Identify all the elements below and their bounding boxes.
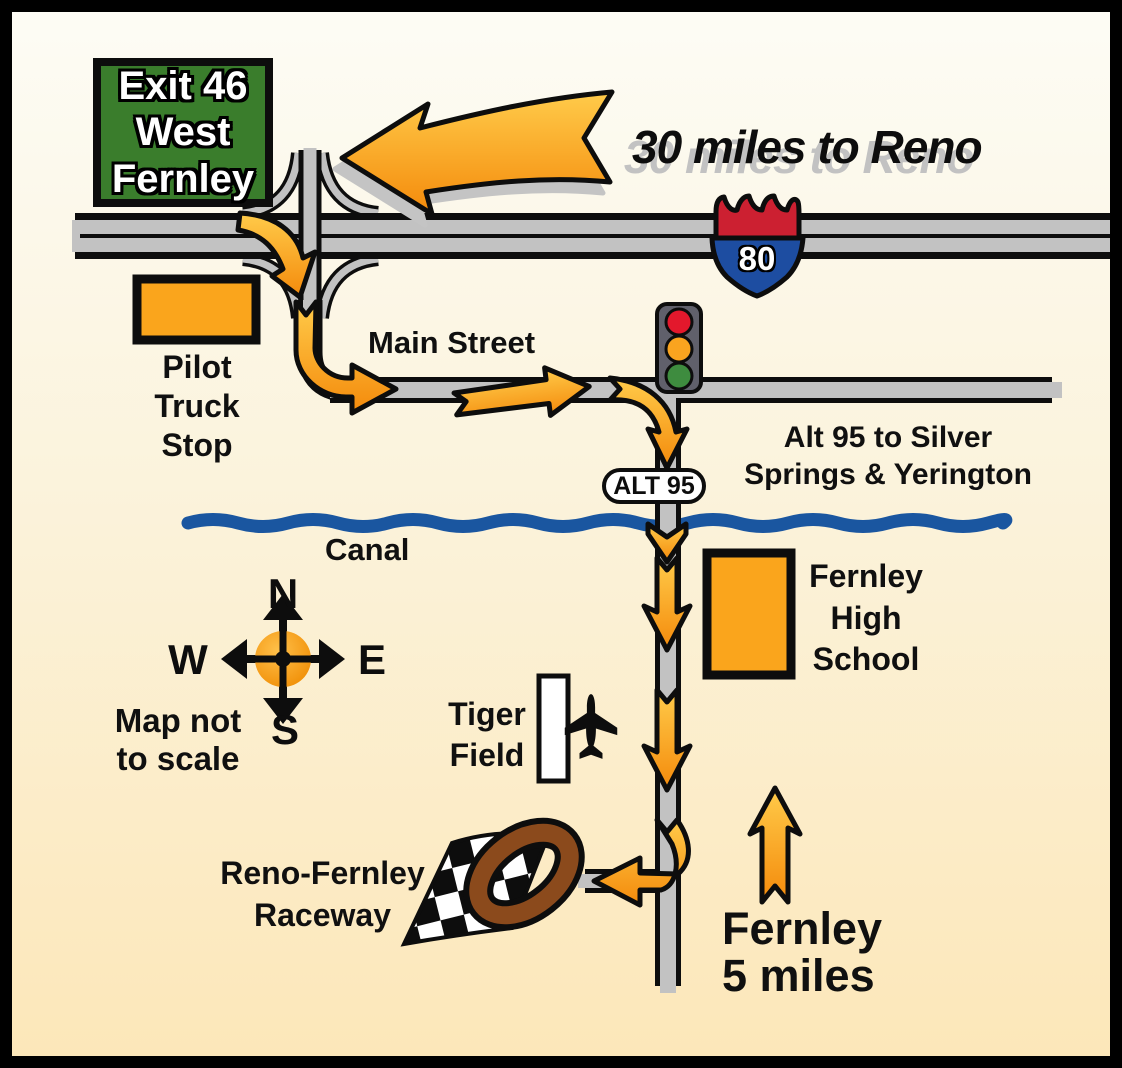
- tiger-field-label: Tiger Field: [432, 694, 542, 776]
- compass-north-label: N: [261, 570, 305, 618]
- alt95-destination-label: Alt 95 to Silver Springs & Yerington: [738, 420, 1038, 493]
- interstate-80-number: 80: [731, 240, 783, 278]
- pilot-truck-stop-label: Pilot Truck Stop: [142, 348, 252, 465]
- map-frame: Exit 46 West Fernley 30 miles to Reno 80…: [0, 0, 1122, 1068]
- compass-west-label: W: [166, 636, 210, 684]
- map-canvas: Exit 46 West Fernley 30 miles to Reno 80…: [12, 12, 1110, 1056]
- label-layer: Exit 46 West Fernley 30 miles to Reno 80…: [12, 12, 1110, 1056]
- canal-label: Canal: [325, 530, 409, 569]
- exit-46-sign-text: Exit 46 West Fernley: [112, 63, 254, 202]
- compass-east-label: E: [350, 636, 394, 684]
- map-scale-note: Map not to scale: [98, 702, 258, 778]
- alt95-badge: ALT 95: [602, 468, 706, 504]
- compass-south-label: S: [263, 706, 307, 754]
- high-school-label: Fernley High School: [798, 556, 934, 681]
- exit-46-sign: Exit 46 West Fernley: [93, 58, 273, 207]
- reno-distance-label: 30 miles to Reno: [632, 120, 982, 174]
- main-street-label: Main Street: [368, 323, 535, 362]
- raceway-label: Reno-Fernley Raceway: [200, 853, 445, 936]
- fernley-distance-label: Fernley 5 miles: [722, 905, 882, 1000]
